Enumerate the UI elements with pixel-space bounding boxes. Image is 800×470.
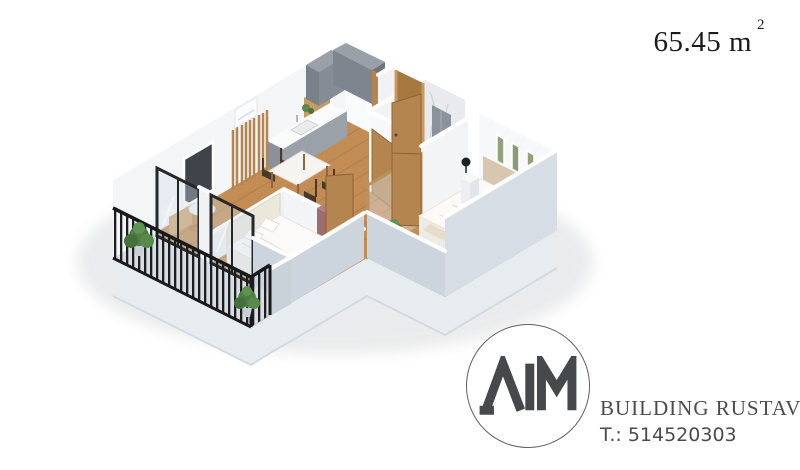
entry — [392, 70, 423, 167]
logo-company-text: BUILDING RUSTAVI — [600, 396, 800, 421]
logo-phone-text: T.: 514520303 — [600, 424, 737, 446]
letter-a — [480, 364, 521, 411]
logo-block: BUILDING RUSTAVI T.: 514520303 — [466, 324, 796, 464]
bedroom2-door — [392, 153, 421, 226]
upper-cabinet-left-side — [306, 65, 319, 106]
black-lamp — [462, 158, 471, 167]
logo-circle — [466, 324, 590, 448]
area-superscript: 2 — [757, 17, 765, 33]
letter-m — [541, 364, 571, 411]
screenshot-root: 65.45 m2 BUILDING RUSTAVI T.: 514520303 — [0, 0, 800, 470]
logo-monogram-aim — [476, 356, 580, 416]
area-unit: m — [729, 26, 752, 58]
area-value: 65.45 — [653, 26, 721, 58]
area-label: 65.45 m2 — [653, 26, 760, 59]
